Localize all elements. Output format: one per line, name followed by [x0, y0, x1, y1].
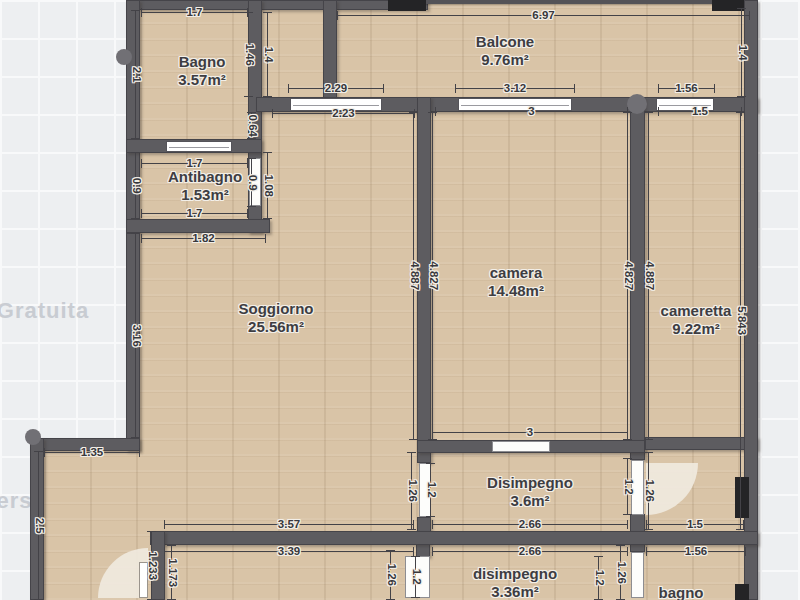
room-label-bagno2: bagno: [659, 584, 704, 600]
window: [166, 141, 232, 152]
room-label-cameretta: cameretta9.22m²: [661, 302, 732, 338]
radiator: [735, 477, 749, 518]
wall: [30, 438, 140, 451]
wall-cap: [627, 94, 647, 114]
wall-cap: [25, 429, 41, 445]
door-leaf: [139, 562, 148, 598]
wall: [30, 438, 44, 600]
door: [405, 556, 430, 598]
wall: [323, 0, 337, 98]
room-label-bagno: Bagno3.57m²: [178, 53, 226, 89]
door: [419, 463, 431, 517]
pillar: [712, 0, 744, 11]
balcony-railing: [424, 0, 750, 4]
window: [290, 98, 382, 111]
door: [631, 460, 644, 515]
door: [249, 158, 261, 206]
wall: [126, 233, 140, 451]
wall: [630, 97, 645, 460]
radiator: [735, 584, 749, 600]
room-label-antibagno: Antibagno1.53m²: [168, 168, 242, 204]
window: [656, 98, 714, 111]
wall: [151, 531, 165, 600]
wall: [126, 0, 428, 10]
wall: [645, 437, 758, 450]
window: [458, 98, 572, 111]
watermark-text: Versione Gratuita: [0, 298, 89, 324]
room-label-camera: camera14.48m²: [488, 264, 544, 300]
wall: [126, 219, 270, 233]
room-label-disimpegno: Disimpegno3.6m²: [487, 474, 573, 510]
room-label-balcone: Balcone9.76m²: [476, 33, 534, 69]
wall: [126, 0, 140, 233]
door: [631, 552, 644, 598]
room-label-disimpegno2: disimpegno3.36m²: [473, 565, 557, 600]
room-label-soggiorno: Soggiorno25.56m²: [239, 300, 314, 336]
wall: [150, 531, 758, 545]
floorplan-canvas: Versione Gratuita Versione Gratuita: [0, 0, 800, 600]
wall: [417, 97, 431, 463]
sliding-door: [492, 441, 550, 452]
wall-cap: [116, 49, 132, 65]
pillar: [388, 0, 426, 11]
